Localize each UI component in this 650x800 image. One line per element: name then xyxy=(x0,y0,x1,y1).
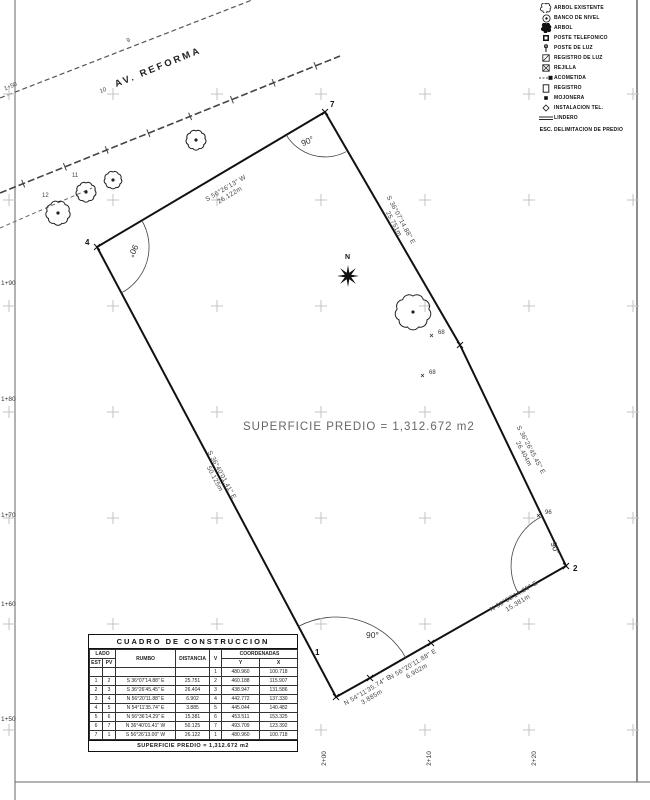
legend-item-label: BANCO DE NIVEL xyxy=(554,15,600,21)
vertex-number-label: 4 xyxy=(85,238,89,247)
table-cell: 26.404 xyxy=(176,686,210,695)
table-cell xyxy=(116,668,176,677)
table-cell xyxy=(176,668,210,677)
vertex-tick xyxy=(322,109,328,115)
table-cell: 4 xyxy=(90,704,103,713)
legend-item: REGISTRO DE LUZ xyxy=(538,53,603,63)
legend-item-label: MOJONERA xyxy=(554,95,585,101)
road-edge-south xyxy=(0,56,340,193)
table-cell: 1 xyxy=(90,677,103,686)
table-cell: 442.772 xyxy=(222,695,260,704)
table-cell: 493.709 xyxy=(222,722,260,731)
table-row: 1480.960100.718 xyxy=(90,668,298,677)
col-rumbo: RUMBO xyxy=(116,650,176,668)
legend-item-label: REGISTRO DE LUZ xyxy=(554,55,603,61)
table-cell: N 54°11'35.74" E xyxy=(116,704,176,713)
table-cell: N 36°40'01.41" W xyxy=(116,722,176,731)
legend-item: LINDERO xyxy=(538,113,578,123)
table-cell: 3 xyxy=(90,695,103,704)
grid-cross xyxy=(107,512,119,524)
north-arrow-icon xyxy=(337,265,359,287)
legend-item: REJILLA xyxy=(538,63,576,73)
table-cell: 5 xyxy=(210,704,222,713)
legend-item-label: REJILLA xyxy=(554,65,576,71)
station-label-left: 1+50 xyxy=(1,716,16,723)
grid-cross xyxy=(315,512,327,524)
legend-item: REGISTRO xyxy=(538,83,582,93)
table-cell: 6 xyxy=(103,713,116,722)
legend-item: ARBOL EXISTENTE xyxy=(538,3,604,13)
corner-angle-label: 90° xyxy=(366,630,379,640)
esc-icon: ESC. xyxy=(538,127,554,133)
grid-cross xyxy=(419,618,431,630)
table-cell: N 56°20'11.88" E xyxy=(116,695,176,704)
table-cell: 137.330 xyxy=(260,695,298,704)
col-v: V xyxy=(210,650,222,668)
table-row: 34N 56°20'11.88" E6.9024442.772137.330 xyxy=(90,695,298,704)
grid-cross xyxy=(211,618,223,630)
grid-cross xyxy=(3,406,15,418)
col-y: Y xyxy=(222,659,260,668)
tree-solid-icon xyxy=(538,23,554,33)
table-cell: 1 xyxy=(210,731,222,740)
point-marker xyxy=(421,374,424,377)
col-pv: PV xyxy=(103,659,116,668)
table-cell: 115.907 xyxy=(260,677,298,686)
tree-trunk-icon xyxy=(84,190,87,193)
table-cell: 3 xyxy=(103,686,116,695)
parcel-area-label: SUPERFICIE PREDIO = 1,312.672 m2 xyxy=(243,421,475,433)
legend-item: INSTALACION TEL. xyxy=(538,103,603,113)
legend-item: ACOMETIDA xyxy=(538,73,586,83)
table-cell: S 36°07'14.88" E xyxy=(116,677,176,686)
north-label: N xyxy=(345,254,350,261)
station-label-bottom: 2+10 xyxy=(426,751,433,766)
tree-trunk-icon xyxy=(111,178,114,181)
legend-item: POSTE TELEFONICO xyxy=(538,33,608,43)
grid-cross xyxy=(3,724,15,736)
table-cell: 5 xyxy=(90,713,103,722)
col-coordenadas: COORDENADAS xyxy=(222,650,298,659)
table-cell: S 36°26'45.45" E xyxy=(116,686,176,695)
table-cell: 7 xyxy=(210,722,222,731)
grid-cross xyxy=(315,406,327,418)
table-cell: 50.125 xyxy=(176,722,210,731)
rect-outline-icon xyxy=(538,84,554,93)
table-row: 12S 36°07'14.88" E25.7512460.188115.907 xyxy=(90,677,298,686)
table-cell: 4 xyxy=(210,695,222,704)
legend-item-label: ARBOL EXISTENTE xyxy=(554,5,604,11)
box-x-icon xyxy=(538,64,554,72)
grid-cross xyxy=(419,512,431,524)
table-cell: 25.751 xyxy=(176,677,210,686)
line-dot-icon xyxy=(538,75,554,81)
legend-item-label: REGISTRO xyxy=(554,85,582,91)
legend-item: POSTE DE LUZ xyxy=(538,43,593,53)
point-marker xyxy=(537,514,540,517)
grid-cross xyxy=(107,618,119,630)
diamond-icon xyxy=(538,104,554,112)
post-square-icon xyxy=(538,34,554,42)
grid-cross xyxy=(523,618,535,630)
grid-cross xyxy=(3,618,15,630)
point-elevation-label: 96 xyxy=(545,510,552,516)
tree-trunk-icon xyxy=(194,138,197,141)
table-cell: 445.044 xyxy=(222,704,260,713)
table-cell: 3 xyxy=(210,686,222,695)
table-cell: 7 xyxy=(103,722,116,731)
grid-cross xyxy=(315,618,327,630)
table-cell: 5 xyxy=(103,704,116,713)
table-cell: 15.381 xyxy=(176,713,210,722)
register-box-icon xyxy=(538,54,554,62)
legend-item-label: DELIMITACION DE PREDIO xyxy=(554,127,623,133)
grid-cross xyxy=(419,724,431,736)
table-cell: 140.482 xyxy=(260,704,298,713)
station-label-left: 1+60 xyxy=(1,601,16,608)
table-cell: 123.392 xyxy=(260,722,298,731)
tree-outline-icon xyxy=(538,3,554,13)
col-x: X xyxy=(260,659,298,668)
grid-cross xyxy=(523,88,535,100)
benchmark-icon xyxy=(538,14,554,23)
table-cell: 1 xyxy=(210,668,222,677)
vertex-number-label: 1 xyxy=(315,648,319,657)
grid-cross xyxy=(419,406,431,418)
light-post-icon xyxy=(538,44,554,53)
table-cell: 2 xyxy=(90,686,103,695)
table-cell xyxy=(90,668,103,677)
table-row: 56N 56°36'14.29" E15.3816453.511153.325 xyxy=(90,713,298,722)
grid-cross xyxy=(419,194,431,206)
road-tick-label: 11 xyxy=(72,173,78,179)
double-line-icon xyxy=(538,116,554,121)
col-distancia: DISTANCIA xyxy=(176,650,210,668)
table-cell: 480.960 xyxy=(222,731,260,740)
table-cell: 100.718 xyxy=(260,731,298,740)
legend-item: MOJONERA xyxy=(538,93,585,103)
grid-cross xyxy=(3,194,15,206)
table-row: 67N 36°40'01.41" W50.1257493.709123.392 xyxy=(90,722,298,731)
station-label-bottom: 2+20 xyxy=(531,751,538,766)
grid-cross xyxy=(419,88,431,100)
vertex-number-label: 2 xyxy=(573,564,577,573)
grid-cross xyxy=(211,88,223,100)
grid-cross xyxy=(3,300,15,312)
table-footer: SUPERFICIE PREDIO = 1,312.672 m2 xyxy=(89,740,297,751)
table-cell: N 56°36'14.29" E xyxy=(116,713,176,722)
grid-cross xyxy=(107,194,119,206)
station-label-bottom: 2+00 xyxy=(321,751,328,766)
grid-cross xyxy=(211,300,223,312)
grid-cross xyxy=(523,724,535,736)
station-label-left: 1+80 xyxy=(1,396,16,403)
table-cell: 438.947 xyxy=(222,686,260,695)
point-elevation-label: 68 xyxy=(438,330,445,336)
table-cell: 153.325 xyxy=(260,713,298,722)
table-cell: 2 xyxy=(210,677,222,686)
table-row: 45N 54°11'35.74" E3.8855445.044140.482 xyxy=(90,704,298,713)
point-elevation-label: 68 xyxy=(429,370,436,376)
grid-cross xyxy=(315,724,327,736)
table-cell: 131.586 xyxy=(260,686,298,695)
col-est: EST xyxy=(90,659,103,668)
table-cell: 1 xyxy=(103,731,116,740)
vertex-tick xyxy=(428,640,434,646)
vertex-number-label: 7 xyxy=(330,100,334,109)
grid-cross xyxy=(211,406,223,418)
legend-item: BANCO DE NIVEL xyxy=(538,13,600,23)
table-cell: 6 xyxy=(90,722,103,731)
grid-cross xyxy=(107,300,119,312)
grid-cross xyxy=(211,512,223,524)
legend-item-label: INSTALACION TEL. xyxy=(554,105,603,111)
table-title: CUADRO DE CONSTRUCCION xyxy=(89,635,297,649)
station-label-left: 1+70 xyxy=(1,512,16,519)
grid-cross xyxy=(315,194,327,206)
table-cell: 480.960 xyxy=(222,668,260,677)
table-cell xyxy=(103,668,116,677)
tree-trunk-icon xyxy=(56,211,59,214)
dot-square-icon xyxy=(538,95,554,101)
grid-cross xyxy=(523,406,535,418)
legend-item: ARBOL xyxy=(538,23,573,33)
table-row: 23S 36°26'45.45" E26.4043438.947131.586 xyxy=(90,686,298,695)
survey-sheet: AV. REFORMA SUPERFICIE PREDIO = 1,312.67… xyxy=(0,0,650,800)
road-tick-label: 12 xyxy=(42,193,49,199)
table-cell: 6 xyxy=(210,713,222,722)
tree-trunk-icon xyxy=(411,310,414,313)
station-label-left: 1+90 xyxy=(1,280,16,287)
legend-item-label: POSTE DE LUZ xyxy=(554,45,593,51)
table-row: 71S 56°26'13.00" W26.1221480.960100.718 xyxy=(90,731,298,740)
grid-cross xyxy=(523,300,535,312)
legend-item-label: ARBOL xyxy=(554,25,573,31)
point-marker xyxy=(430,334,433,337)
col-lado: LADO xyxy=(90,650,116,659)
table-cell: 7 xyxy=(90,731,103,740)
table-cell: 2 xyxy=(103,677,116,686)
legend-item-label: ACOMETIDA xyxy=(554,75,586,81)
angle-arc-top-right xyxy=(286,135,346,157)
table-cell: S 56°26'13.00" W xyxy=(116,731,176,740)
grid-cross xyxy=(107,406,119,418)
table-cell: 460.188 xyxy=(222,677,260,686)
legend-item-label: LINDERO xyxy=(554,115,578,121)
grid-cross xyxy=(315,88,327,100)
construction-table: CUADRO DE CONSTRUCCION LADO RUMBO DISTAN… xyxy=(88,634,298,752)
legend-item: ESC.DELIMITACION DE PREDIO xyxy=(538,125,623,135)
table-cell: 4 xyxy=(103,695,116,704)
table-cell: 100.718 xyxy=(260,668,298,677)
table-cell: 3.885 xyxy=(176,704,210,713)
legend-item-label: POSTE TELEFONICO xyxy=(554,35,608,41)
vertex-tick xyxy=(367,675,373,681)
table-cell: 6.902 xyxy=(176,695,210,704)
table-cell: 453.511 xyxy=(222,713,260,722)
table-cell: 26.122 xyxy=(176,731,210,740)
grid-cross xyxy=(523,194,535,206)
grid-cross xyxy=(315,300,327,312)
